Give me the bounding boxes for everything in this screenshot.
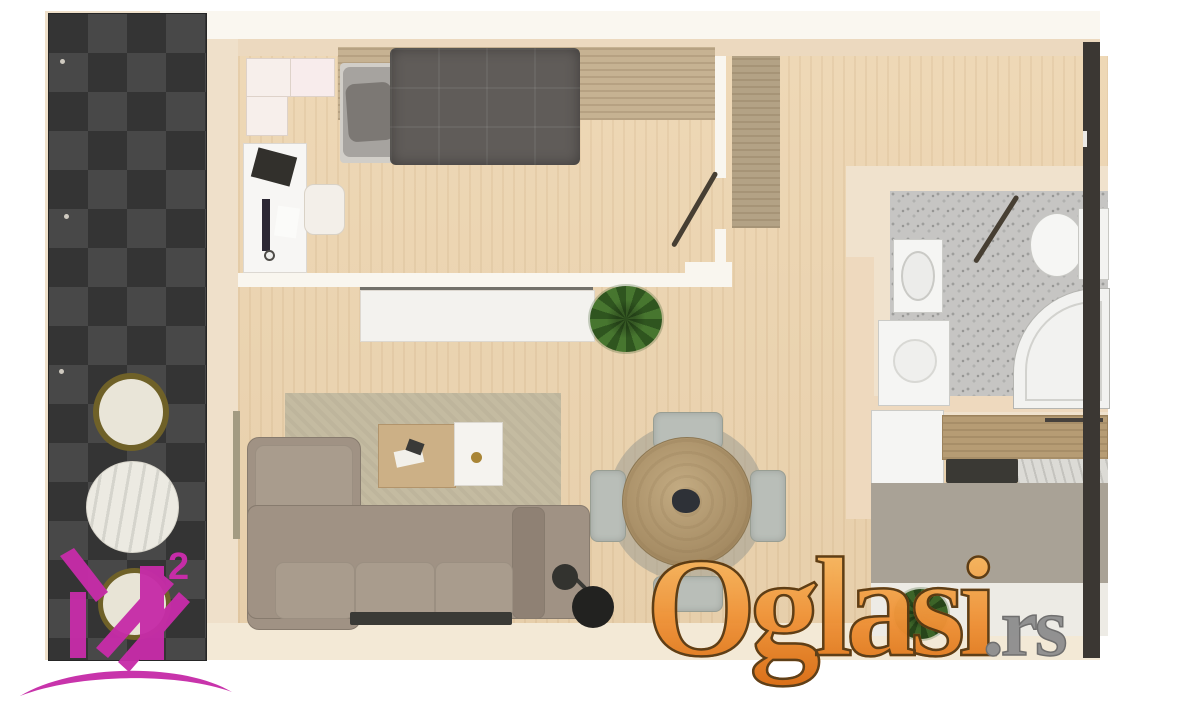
m2-logo-superscript: 2 bbox=[168, 546, 189, 589]
watermark: Oglasi.rs bbox=[646, 536, 1065, 678]
wardrobe-cabinet bbox=[246, 58, 291, 97]
entry-door-handle bbox=[1083, 131, 1087, 147]
bed-duvet bbox=[390, 48, 580, 165]
bedroom-wall-corner bbox=[685, 262, 732, 287]
desk-chair bbox=[304, 184, 345, 235]
desk-paper bbox=[274, 206, 300, 239]
sink-basin bbox=[901, 251, 935, 301]
balcony-dot bbox=[64, 214, 69, 219]
cooktop bbox=[946, 459, 1018, 483]
radiator-line bbox=[233, 411, 240, 539]
wardrobe-cabinet bbox=[290, 58, 335, 97]
desk-monitor bbox=[262, 199, 270, 251]
partition-wall bbox=[846, 257, 874, 519]
fridge bbox=[871, 410, 944, 489]
watermark-tld: .rs bbox=[983, 581, 1065, 674]
balcony-dot bbox=[60, 59, 65, 64]
top-margin bbox=[160, 11, 1100, 39]
floor-lamp-shade bbox=[572, 586, 614, 628]
dining-chair-left bbox=[590, 470, 626, 542]
balcony-dot bbox=[59, 369, 64, 374]
balcony-table-small bbox=[93, 373, 169, 451]
bedroom-wall-bottom bbox=[238, 273, 732, 287]
sofa-cushion bbox=[435, 562, 513, 619]
sofa-cushion bbox=[355, 562, 435, 619]
desk-mouse bbox=[264, 250, 275, 261]
washing-machine-door bbox=[893, 339, 937, 383]
tray-candle bbox=[471, 452, 482, 463]
watermark-text: Oglasi bbox=[646, 528, 991, 686]
bed-pillow bbox=[345, 81, 395, 142]
logo-swoosh bbox=[20, 671, 232, 696]
wardrobe-cabinet bbox=[246, 96, 288, 136]
sofa-armrest bbox=[512, 507, 545, 619]
hallway-closet bbox=[732, 56, 780, 228]
table-centerpiece bbox=[672, 489, 700, 513]
m2-logo bbox=[14, 540, 244, 704]
logo-stroke bbox=[140, 566, 164, 660]
potted-plant bbox=[590, 286, 662, 352]
logo-stroke bbox=[70, 592, 86, 658]
toilet-bowl bbox=[1030, 213, 1084, 277]
bedroom-wall-right bbox=[715, 56, 726, 178]
sofa-cushion bbox=[275, 562, 355, 619]
tv-console bbox=[350, 612, 512, 625]
floor-lamp-base bbox=[552, 564, 578, 590]
sideboard bbox=[360, 290, 595, 342]
